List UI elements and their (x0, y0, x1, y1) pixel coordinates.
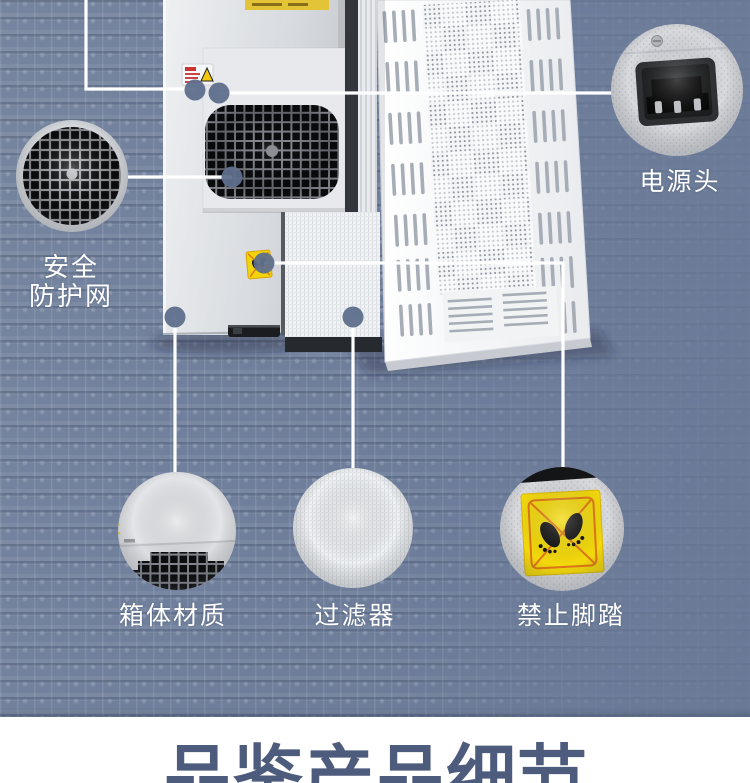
banner-top-shadow (0, 707, 750, 717)
label-box-material: 箱体材质 (118, 602, 228, 631)
label-safety-net-line2: 防护网 (19, 282, 123, 312)
diffuser-panel (377, 0, 592, 371)
handle (228, 325, 280, 337)
callout-circle-filter (293, 468, 413, 588)
product-detail-section: 安全 防护网 电源头 箱体材质 过滤器 禁止脚踏 品鉴产品细节 (0, 0, 750, 783)
label-power-plug: 电源头 (625, 168, 735, 197)
callout-circle-safety-net (16, 120, 128, 232)
section-title-banner: 品鉴产品细节 (0, 717, 750, 783)
label-filter: 过滤器 (303, 602, 407, 631)
label-safety-net-line1: 安全 (19, 253, 123, 283)
callout-circle-no-step (494, 447, 636, 591)
section-title: 品鉴产品细节 (162, 743, 588, 783)
top-label (245, 0, 329, 10)
callout-circle-box-material (111, 472, 240, 594)
label-no-step: 禁止脚踏 (513, 602, 629, 631)
callout-circle-power-plug (611, 24, 743, 156)
